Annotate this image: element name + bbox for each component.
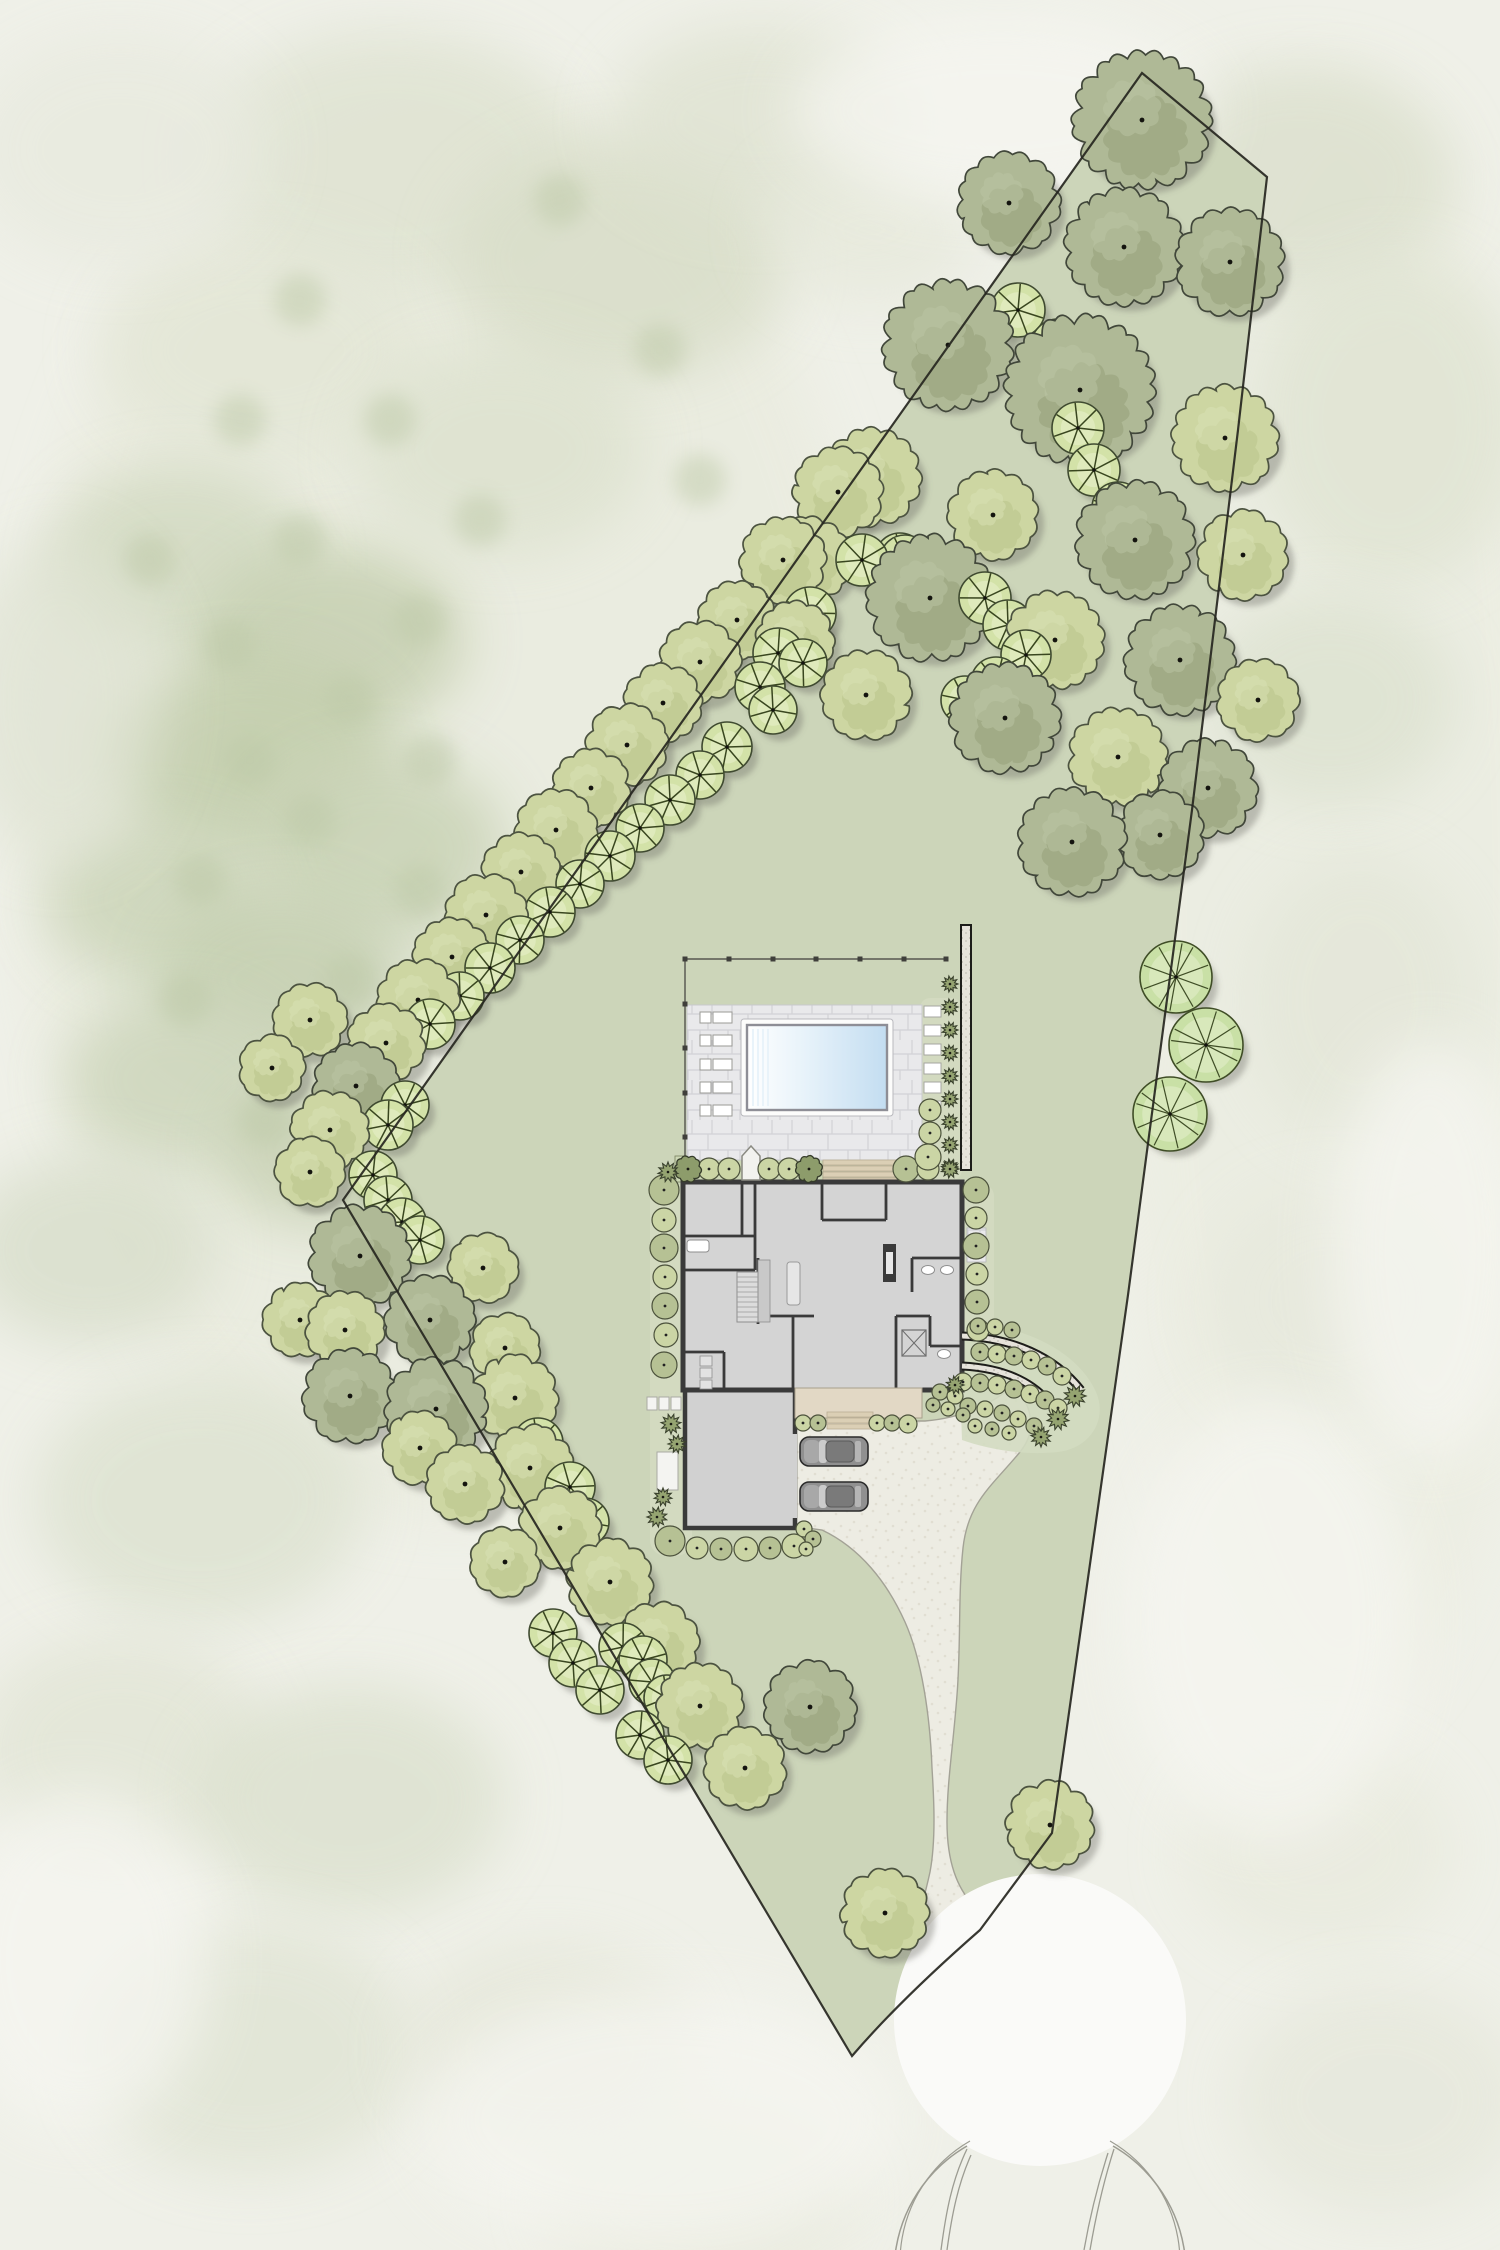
- shrub: [941, 1402, 955, 1416]
- equipment-pad: [671, 1397, 681, 1410]
- shrub: [966, 1263, 988, 1285]
- shrub: [654, 1323, 678, 1347]
- tree-canopy: [749, 686, 797, 734]
- planter-box: [924, 1082, 941, 1093]
- terrace-steps: [823, 1172, 897, 1177]
- shrub: [956, 1408, 970, 1422]
- tree-canopy: [363, 1100, 413, 1150]
- shrub: [988, 1376, 1006, 1394]
- tree-canopy: [840, 1869, 930, 1958]
- shrub: [919, 1099, 941, 1121]
- shrub: [987, 1319, 1003, 1335]
- shrub: [810, 1415, 826, 1431]
- shrub: [919, 1122, 941, 1144]
- shrub: [963, 1177, 989, 1203]
- lounge-chair: [700, 1082, 732, 1093]
- bath-fixture: [938, 1350, 951, 1359]
- lounge-chair: [700, 1059, 732, 1070]
- terrace-steps: [823, 1160, 897, 1165]
- shrub: [718, 1158, 740, 1180]
- shrub: [915, 1144, 941, 1170]
- parked-car: [800, 1482, 868, 1511]
- shrub: [884, 1415, 900, 1431]
- shrub: [759, 1537, 781, 1559]
- shrub: [799, 1542, 813, 1556]
- shrub: [650, 1234, 678, 1262]
- shrub: [971, 1374, 989, 1392]
- tree-canopy: [1133, 1077, 1207, 1151]
- shrub: [655, 1526, 685, 1556]
- staircase: [737, 1272, 758, 1322]
- lounge-chair: [700, 1035, 732, 1046]
- dark-shrub: [675, 1156, 702, 1182]
- shrub: [965, 1290, 989, 1314]
- shrub: [649, 1175, 679, 1205]
- shrub: [795, 1415, 811, 1431]
- kitchen-island: [787, 1262, 800, 1305]
- porch-steps: [827, 1418, 873, 1423]
- shrub: [971, 1343, 989, 1361]
- shrub: [926, 1398, 940, 1412]
- bathtub: [687, 1240, 709, 1252]
- shrub: [994, 1405, 1010, 1421]
- lounge-chair: [700, 1105, 732, 1116]
- tree-canopy: [779, 639, 827, 687]
- shrub: [1004, 1322, 1020, 1338]
- parked-car: [800, 1437, 868, 1466]
- shrub: [652, 1208, 676, 1232]
- shrub: [985, 1422, 999, 1436]
- porch-steps: [827, 1424, 873, 1429]
- shrub: [899, 1415, 917, 1433]
- shrub: [869, 1415, 885, 1431]
- shrub: [652, 1293, 678, 1319]
- shrub: [1005, 1347, 1023, 1365]
- shrub: [1053, 1367, 1071, 1385]
- planter-box: [924, 1063, 941, 1074]
- shrub: [963, 1233, 989, 1259]
- shrub: [686, 1537, 708, 1559]
- bath-fixture: [922, 1266, 935, 1275]
- shrub: [970, 1318, 986, 1334]
- lounge-chair: [700, 1012, 732, 1023]
- shrub: [1002, 1426, 1016, 1440]
- shrub: [653, 1265, 677, 1289]
- equipment-pad: [659, 1397, 669, 1410]
- garage: [685, 1387, 795, 1528]
- shrub: [1022, 1351, 1040, 1369]
- shrub: [968, 1419, 982, 1433]
- shrub: [977, 1401, 993, 1417]
- planter-box: [924, 1025, 941, 1036]
- car-rear-window: [855, 1441, 861, 1462]
- shrub: [651, 1352, 677, 1378]
- planter-box: [924, 1006, 941, 1017]
- car-rear-window: [855, 1486, 861, 1507]
- shrub: [1005, 1380, 1023, 1398]
- shrub: [1010, 1411, 1026, 1427]
- shrub: [965, 1207, 987, 1229]
- tree-canopy: [576, 1666, 624, 1714]
- equipment-pad: [657, 1452, 678, 1490]
- shrub: [734, 1537, 758, 1561]
- bath-fixture: [941, 1266, 954, 1275]
- planter-box: [924, 1044, 941, 1055]
- kitchen-counter: [758, 1260, 770, 1322]
- tree-canopy: [1171, 384, 1280, 492]
- shrub: [988, 1345, 1006, 1363]
- shrub: [710, 1538, 732, 1560]
- equipment-pad: [647, 1397, 657, 1410]
- landscape-site-plan: [0, 0, 1500, 2250]
- garden-wall: [961, 925, 971, 1170]
- tree-canopy: [1140, 941, 1212, 1013]
- site-plan-svg: [0, 0, 1500, 2250]
- tree-canopy: [1169, 1008, 1243, 1082]
- shrub: [758, 1158, 780, 1180]
- terrace-steps: [823, 1166, 897, 1171]
- porch-steps: [827, 1412, 873, 1417]
